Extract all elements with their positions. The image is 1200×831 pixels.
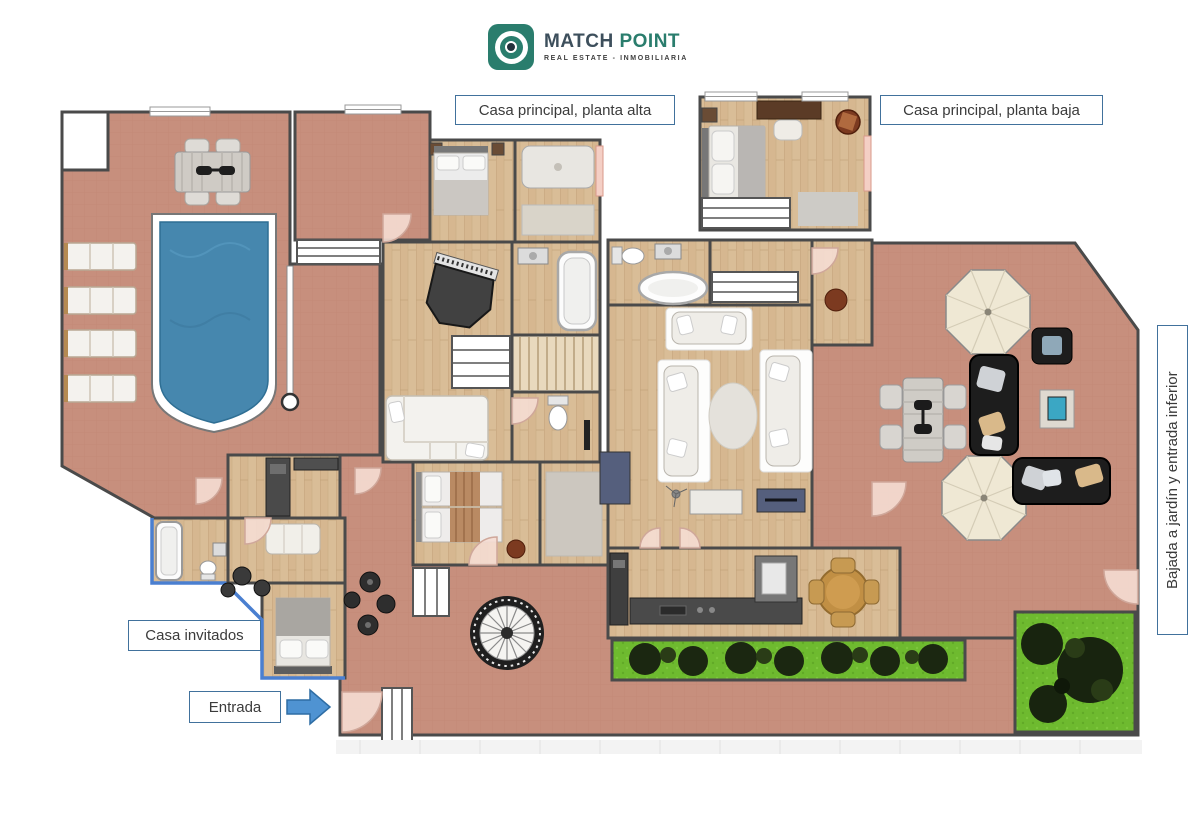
spiral-staircase xyxy=(470,596,544,670)
logo-subtitle: REAL ESTATE - INMOBILIARIA xyxy=(544,55,688,62)
outside-ground-strip xyxy=(336,740,1142,754)
label-entrada: Entrada xyxy=(189,691,281,723)
corridor-b-stairs xyxy=(712,272,798,302)
terrace-notch xyxy=(62,112,108,170)
hall-c-chair xyxy=(825,289,847,311)
entrada-arrow-icon xyxy=(286,688,332,726)
label-casa-invitados: Casa invitados xyxy=(128,620,261,651)
stairs-upper-terrace xyxy=(297,240,380,264)
entrance-stairs xyxy=(382,688,412,746)
logo-title-point: POINT xyxy=(619,31,680,52)
piano-room-stairs xyxy=(452,336,510,388)
pool xyxy=(152,214,276,432)
logo-title-match: MATCH xyxy=(544,31,614,52)
umbrella-top xyxy=(946,270,1030,354)
stairs-near-spiral xyxy=(413,568,449,616)
outdoor-sofa-vertical xyxy=(970,355,1018,455)
hall-b-rug xyxy=(546,472,602,556)
matchpoint-logo: MATCH POINT REAL ESTATE - INMOBILIARIA xyxy=(488,24,688,70)
floorplan-page: { "logo": { "title_primary": "MATCH", "t… xyxy=(0,0,1200,831)
label-planta-baja: Casa principal, planta baja xyxy=(880,95,1103,125)
corner-sofa xyxy=(386,396,488,460)
matchpoint-logo-icon xyxy=(488,24,534,70)
label-planta-alta: Casa principal, planta alta xyxy=(455,95,675,125)
outdoor-sofa-horizontal xyxy=(1013,458,1110,504)
label-bajada-jardin: Bajada a jardín y entrada inferior xyxy=(1157,325,1188,635)
logo-title: MATCH POINT xyxy=(544,32,688,51)
